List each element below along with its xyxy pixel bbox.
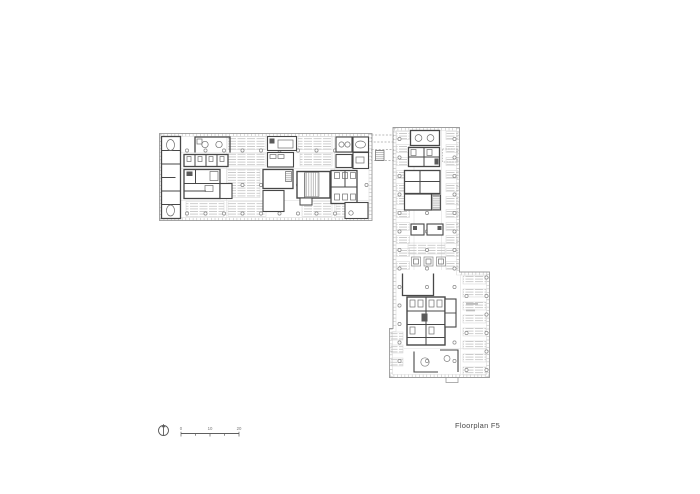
scale-bar: 0 10 20: [180, 426, 242, 437]
floorplan-drawing: 0 10 20: [0, 0, 700, 494]
scale-label: 10: [208, 426, 213, 431]
connector-bridges: [372, 135, 394, 161]
drawing-sheet: 0 10 20 Floorplan F5: [0, 0, 700, 494]
scale-label: 20: [237, 426, 242, 431]
north-arrow-icon: [159, 424, 169, 435]
scale-label: 0: [180, 426, 183, 431]
drawing-title-label: Floorplan F5: [455, 421, 500, 430]
